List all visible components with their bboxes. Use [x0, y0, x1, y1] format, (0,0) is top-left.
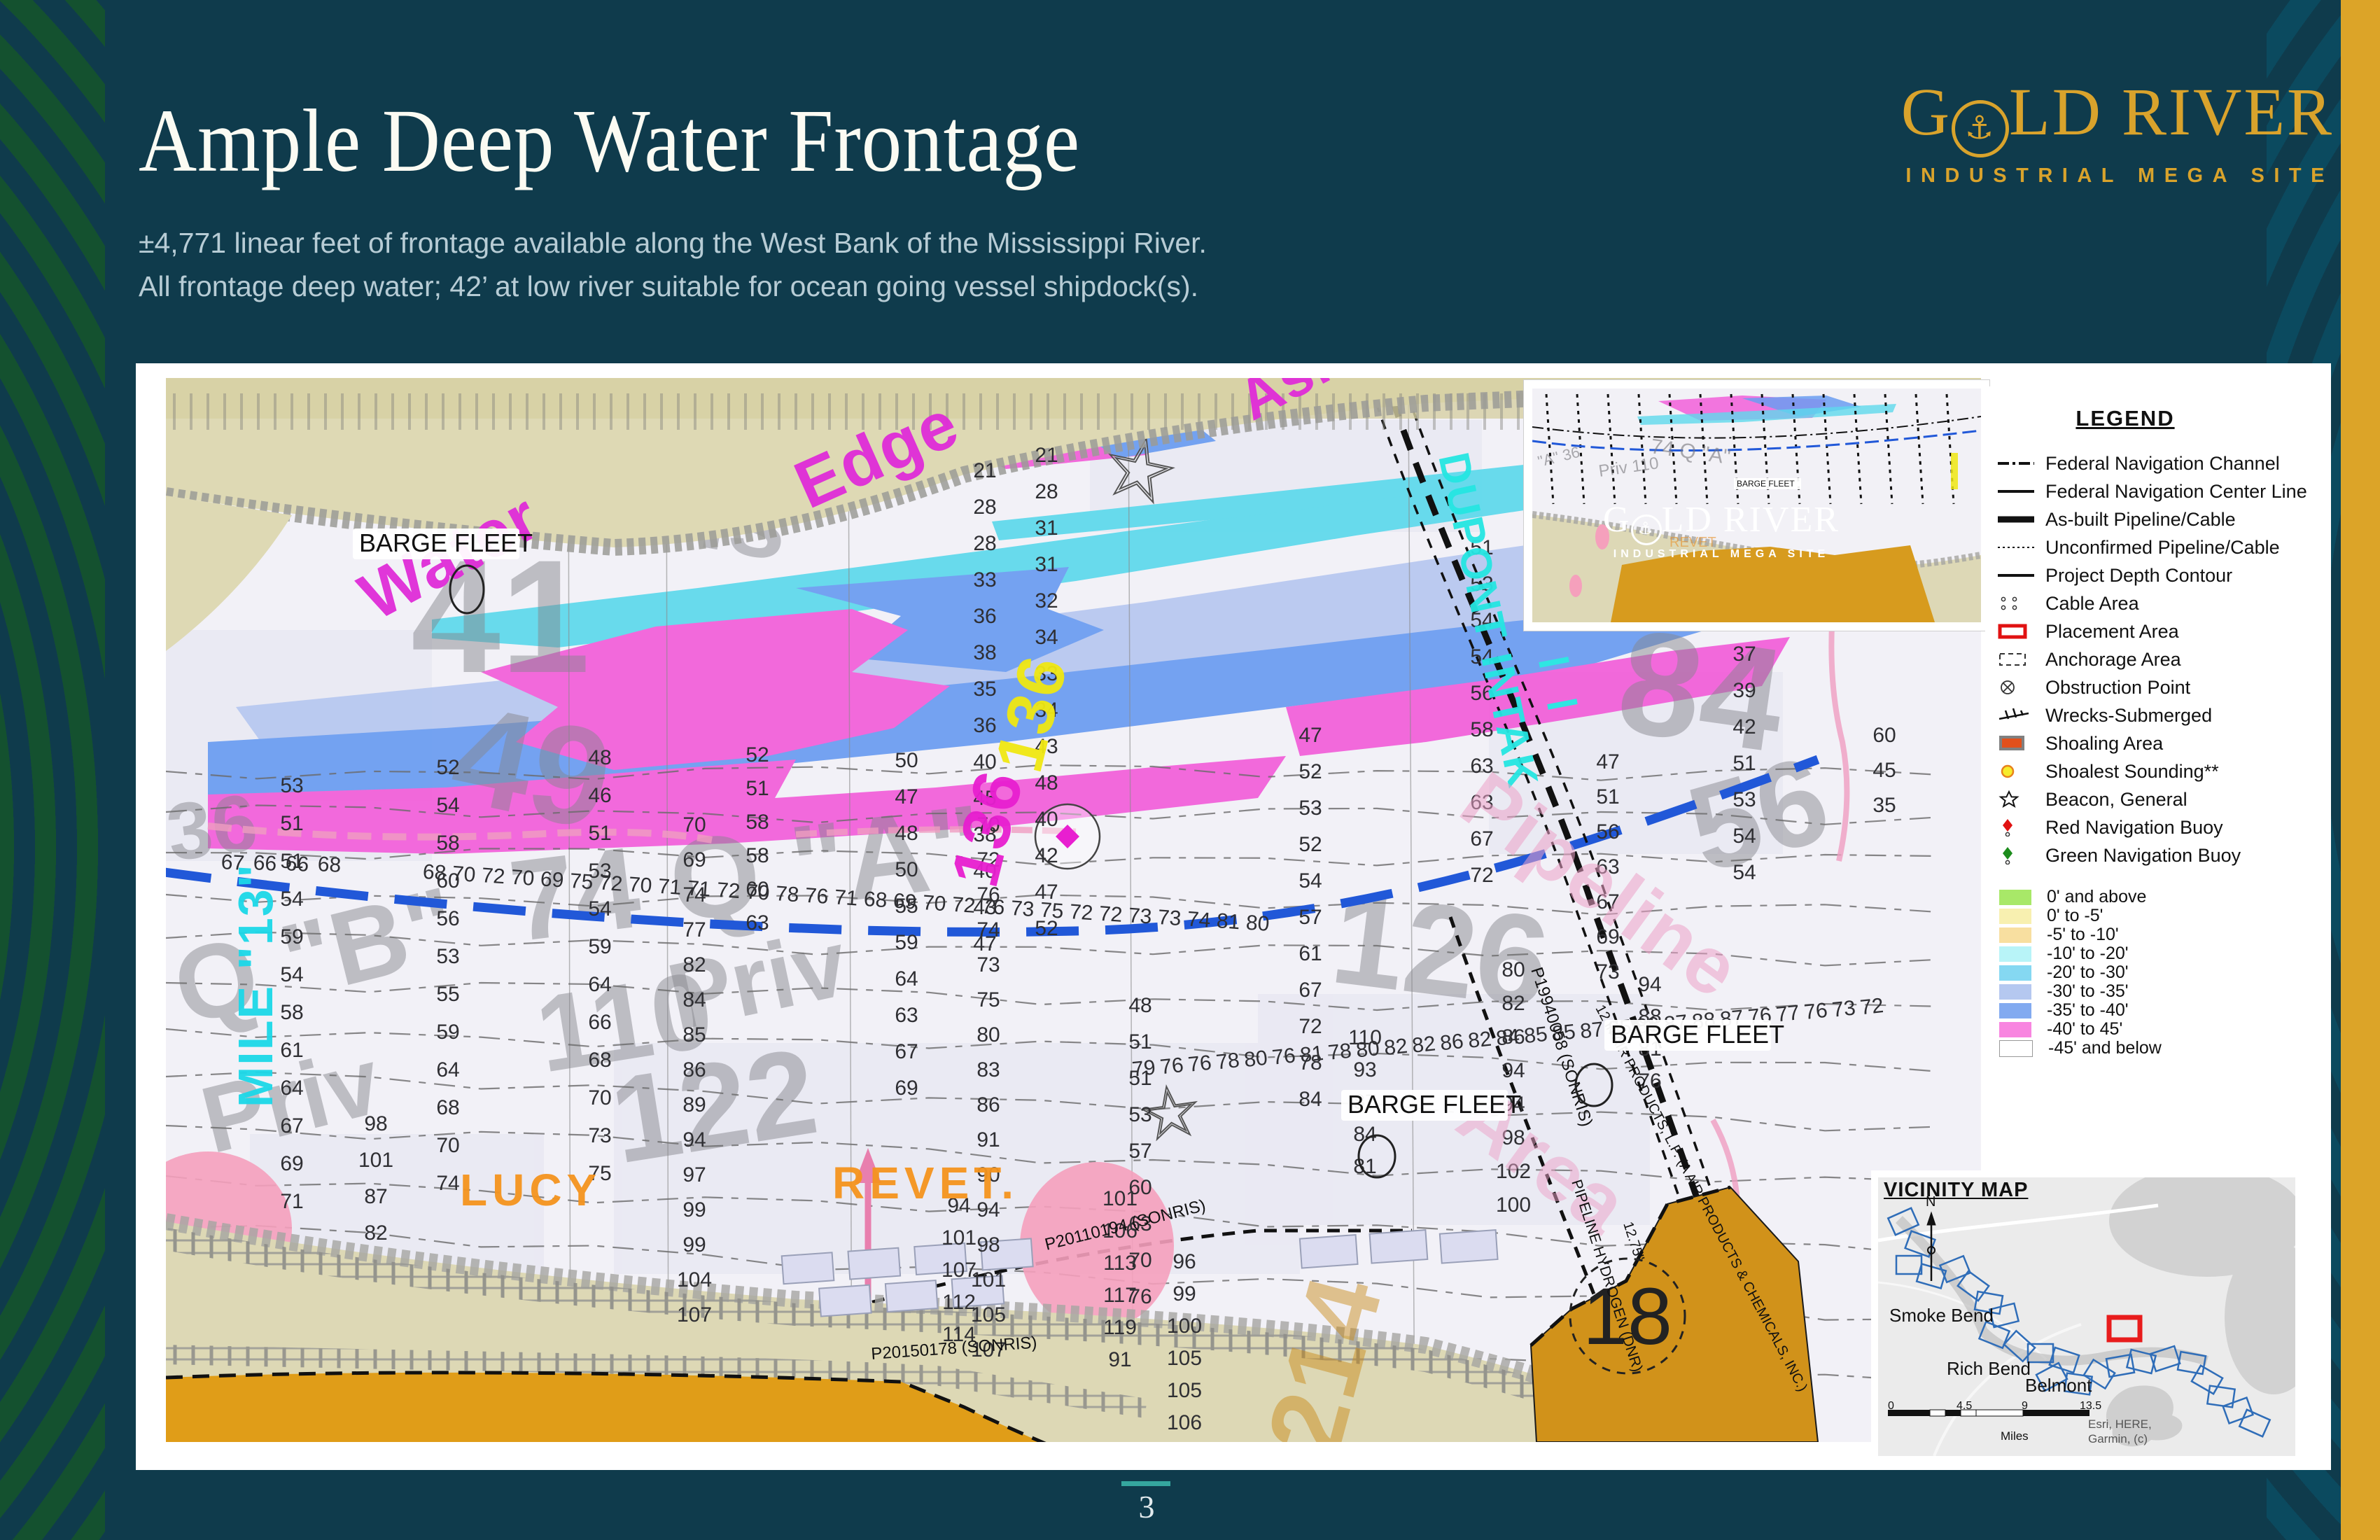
sounding: 54 [1298, 869, 1322, 892]
sounding: 52 [1298, 833, 1322, 856]
sounding: 71 [280, 1190, 303, 1213]
gold-river-logo: G⚓LD RIVER INDUSTRIAL MEGA SITE [1890, 78, 2334, 188]
sounding: 105 [971, 1303, 1006, 1326]
pipeline-sounding: 76 [1159, 1053, 1185, 1079]
sounding: 80 [1501, 958, 1525, 981]
sounding: 47 [1298, 724, 1322, 747]
logo-g: G [1901, 74, 1952, 149]
legend-item-label: Obstruction Point [2045, 677, 2190, 699]
legend-item: Shoaling Area [1985, 729, 2331, 757]
legend-item-label: Project Depth Contour [2045, 565, 2232, 587]
sounding: 48 [895, 822, 918, 845]
sounding: 57 [1128, 1140, 1151, 1163]
sounding: 51 [1596, 785, 1619, 808]
sounding: 77 [682, 918, 706, 941]
legend-item-label: Federal Navigation Center Line [2045, 481, 2307, 503]
sounding: 35 [1872, 794, 1896, 817]
depth-swatch [1999, 927, 2031, 943]
sounding: 70 [588, 1086, 611, 1109]
map-label: MILE "13" [228, 863, 283, 1107]
contour-line-icon [1996, 566, 2036, 584]
sounding: 101 [941, 1226, 976, 1249]
pipeline-sounding: 72 [1859, 994, 1885, 1019]
sounding: 104 [677, 1268, 712, 1291]
map-label: REVET. [832, 1158, 1018, 1208]
sounding: 63 [745, 911, 769, 934]
pipeline-sounding: 72 [716, 878, 741, 903]
pipeline-sounding: 81 [1299, 1042, 1325, 1067]
sounding: 36 [973, 605, 996, 628]
sounding: 54 [1732, 825, 1756, 848]
legend-item-label: As-built Pipeline/Cable [2045, 509, 2236, 531]
sounding: 91 [1108, 1348, 1131, 1371]
sounding: 73 [976, 953, 1000, 976]
pipeline-sounding: 70 [745, 880, 771, 904]
sounding: 70 [436, 1134, 459, 1157]
sounding: 69 [682, 848, 706, 871]
sounding: 34 [1035, 626, 1058, 649]
vicinity-scale-tick: 4.5 [1956, 1400, 1972, 1413]
pipeline-sounding: 68 [422, 860, 447, 885]
pipeline-sounding: 66 [285, 852, 309, 876]
legend-item-label: Beacon, General [2045, 789, 2187, 811]
sounding: 58 [280, 1001, 303, 1024]
sounding: 59 [436, 1021, 459, 1044]
shoaling-area-icon [1996, 734, 2036, 752]
sounding: 67 [1298, 979, 1322, 1002]
pipeline-sounding: 76 [981, 895, 1006, 919]
depth-swatch-label: -10' to -20' [2047, 944, 2129, 964]
pipeline-sounding: 79 [1131, 1056, 1157, 1081]
sounding: 52 [436, 756, 459, 779]
sounding: 53 [280, 774, 303, 797]
sounding: 86 [682, 1058, 706, 1081]
footer-divider [1121, 1481, 1170, 1486]
legend-item: Project Depth Contour [1985, 561, 2331, 589]
pipeline-sounding: 74 [1186, 907, 1212, 932]
depth-scale-row: -10' to -20' [1985, 944, 2331, 963]
pipeline-sounding: 72 [598, 871, 624, 895]
sounding: 89 [682, 1093, 706, 1116]
vicinity-title: VICINITY MAP [1884, 1179, 2028, 1202]
sounding: 59 [895, 931, 918, 954]
pipeline-sounding: 78 [775, 882, 800, 906]
barge-fleet-label: BARGE FLEET [1347, 1090, 1521, 1119]
logo-wordmark: G⚓LD RIVER [1890, 78, 2334, 157]
pipeline-sounding: 80 [1355, 1037, 1381, 1062]
sounding: 119 [1103, 1316, 1137, 1339]
legend-items: Federal Navigation ChannelFederal Naviga… [1985, 449, 2331, 869]
sounding: 75 [976, 988, 1000, 1011]
pipeline-sounding: 82 [1411, 1032, 1437, 1057]
pipeline-sounding: 71 [657, 875, 682, 899]
sounding: 59 [588, 935, 611, 958]
legend-item-label: Green Navigation Buoy [2045, 845, 2241, 867]
pipeline-sounding: 73 [1157, 906, 1182, 930]
vicinity-place-label: Smoke Bend [1889, 1305, 1994, 1326]
pipeline-sounding: 71 [834, 885, 859, 910]
vicinity-north-label: N [1926, 1194, 1935, 1210]
sounding: 74 [436, 1172, 459, 1195]
sounding: 67 [895, 1040, 918, 1063]
sounding: 52 [745, 743, 769, 766]
pipeline-sounding: 69 [540, 867, 565, 892]
pipeline-sounding: 80 [1245, 911, 1270, 936]
pipeline-sounding: 76 [1187, 1051, 1213, 1077]
depth-swatch [1999, 1022, 2031, 1037]
sounding: 84 [1353, 1123, 1376, 1146]
page-subtitle: ±4,771 linear feet of frontage available… [139, 221, 1539, 308]
sounding: 54 [1732, 861, 1756, 884]
depth-swatch [1999, 890, 2031, 905]
depth-scale-row: 0' and above [1985, 888, 2331, 906]
pipeline-sounding: 73 [1831, 996, 1857, 1021]
sounding: 61 [1298, 942, 1322, 965]
sounding: 53 [1128, 1103, 1151, 1126]
page-number: 3 [1092, 1488, 1201, 1525]
depth-swatch [1999, 1003, 2031, 1018]
legend-item-label: Wrecks-Submerged [2045, 705, 2212, 727]
pipeline-sounding: 70 [510, 866, 535, 890]
pipeline-sounding: 72 [1098, 902, 1123, 927]
pipeline-sounding: 76 [804, 884, 829, 909]
depth-swatch [1999, 1040, 2033, 1057]
pipeline-sounding: 70 [451, 862, 477, 886]
sounding: 99 [682, 1198, 706, 1221]
depth-color-scale: 0' and above0' to -5'-5' to -10'-10' to … [1985, 888, 2331, 1058]
vicinity-scale-bar [1888, 1410, 2089, 1416]
depth-swatch [1999, 909, 2031, 924]
sounding: 58 [436, 832, 459, 855]
legend-item: Wrecks-Submerged [1985, 701, 2331, 729]
barge-fleet-label: BARGE FLEET [1611, 1020, 1784, 1049]
sounding: 51 [280, 812, 303, 835]
sounding: 105 [1167, 1379, 1202, 1402]
sounding: 72 [1470, 864, 1493, 887]
subtitle-line-2: All frontage deep water; 42’ at low rive… [139, 265, 1539, 308]
legend-title: LEGEND [2013, 406, 2237, 431]
sounding: 106 [1167, 1411, 1202, 1434]
sounding: 50 [895, 858, 918, 881]
pipeline-sounding: 82 [1467, 1028, 1493, 1053]
sounding: 86 [976, 1093, 1000, 1116]
inset-logo-tagline: INDUSTRIAL MEGA SITE [1574, 548, 1868, 561]
overview-inset-map: 74 Q "A"Priv 110"A" 36REVET BARGE FLEET … [1524, 380, 1989, 631]
sounding: 40 [1035, 808, 1058, 831]
sounding: 31 [1035, 553, 1058, 576]
depth-scale-row: -20' to -30' [1985, 963, 2331, 982]
sounding: 85 [682, 1023, 706, 1046]
legend-item: Shoalest Sounding** [1985, 757, 2331, 785]
placement-area-icon [1996, 622, 2036, 640]
green-buoy-icon [1996, 846, 2036, 864]
inset-barge-label: BARGE FLEET [1737, 479, 1795, 489]
vicinity-map: VICINITY MAP N Smoke BendRich BendBelmon… [1878, 1177, 2295, 1456]
vicinity-scale-tick: 0 [1888, 1400, 1894, 1413]
sounding: 59 [280, 925, 303, 948]
depth-scale-row: 0' to -5' [1985, 906, 2331, 925]
depth-swatch-label: -20' to -30' [2047, 962, 2129, 983]
depth-scale-row: -30' to -35' [1985, 982, 2331, 1001]
sounding: 99 [682, 1233, 706, 1256]
sounding: 52 [1298, 760, 1322, 783]
depth-swatch-label: 0' to -5' [2047, 906, 2103, 926]
sounding: 45 [1872, 759, 1896, 782]
sounding: 82 [364, 1221, 387, 1245]
inset-anchor-icon: ⚓ [1631, 514, 1662, 545]
sounding: 81 [1353, 1155, 1376, 1178]
pipeline-sounding: 72 [1069, 900, 1094, 925]
pipeline-sounding: 72 [481, 864, 506, 888]
legend-item: Federal Navigation Center Line [1985, 477, 2331, 505]
pipeline-sounding: 82 [1383, 1035, 1409, 1060]
shoalest-sounding-icon [1996, 762, 2036, 780]
sounding: 64 [588, 973, 611, 996]
pipeline-sounding: 80 [1243, 1046, 1269, 1072]
vicinity-map-panel: VICINITY MAP N Smoke BendRich BendBelmon… [1871, 1170, 2302, 1463]
sounding: 42 [1035, 844, 1058, 867]
legend-item-label: Shoalest Sounding** [2045, 761, 2219, 783]
pipeline-sounding: 73 [1128, 904, 1153, 928]
pipeline-sounding: 70 [922, 891, 947, 916]
sounding: 51 [1128, 1030, 1151, 1053]
legend-item-label: Placement Area [2045, 621, 2179, 643]
sounding: 73 [1596, 960, 1619, 983]
inset-logo-wordmark: G⚓LD RIVER [1574, 499, 1868, 545]
sounding: 57 [1298, 906, 1322, 929]
sounding: 28 [973, 496, 996, 519]
legend-item-label: Anchorage Area [2045, 649, 2181, 671]
sounding: 53 [1298, 797, 1322, 820]
logo-tagline: INDUSTRIAL MEGA SITE [1890, 164, 2334, 188]
pipeline-sounding: 68 [863, 888, 888, 912]
sounding: 84 [1298, 1088, 1322, 1111]
sounding: 50 [895, 749, 918, 772]
sounding: 64 [280, 1077, 303, 1100]
legend-item: Red Navigation Buoy [1985, 813, 2331, 841]
sounding: 28 [1035, 480, 1058, 503]
depth-swatch [1999, 965, 2031, 981]
thick-line-icon [1996, 510, 2036, 528]
legend-item: Placement Area [1985, 617, 2331, 645]
sounding: 51 [1732, 752, 1756, 775]
depth-swatch-label: -45' and below [2048, 1038, 2162, 1058]
wreck-icon [1996, 706, 2036, 724]
vicinity-scale-tick: 13.5 [2080, 1400, 2101, 1413]
sounding: 105 [1167, 1347, 1202, 1370]
pipeline-sounding: 78 [1327, 1039, 1353, 1065]
sounding: 47 [1596, 750, 1619, 773]
sounding: 72 [1298, 1015, 1322, 1038]
depth-scale-row: -5' to -10' [1985, 925, 2331, 944]
sounding: 60 [1872, 724, 1896, 747]
sounding: 35 [973, 678, 996, 701]
pipeline-label: 12.75" [1620, 1220, 1647, 1263]
pipeline-sounding: 71 [687, 876, 712, 901]
inset-logo: G⚓LD RIVER INDUSTRIAL MEGA SITE [1574, 499, 1868, 561]
dashdot-line-icon [1996, 454, 2036, 472]
gold-accent-bar [2341, 0, 2380, 1540]
cable-area-icon [1996, 594, 2036, 612]
sounding: 112 [942, 1291, 976, 1314]
pipeline-sounding: 86 [1439, 1030, 1465, 1055]
pipeline-sounding: 73 [1010, 897, 1035, 921]
sounding: 48 [1128, 994, 1151, 1017]
dotted-line-icon [1996, 538, 2036, 556]
sounding: 113 [1103, 1252, 1137, 1275]
sounding: 32 [1035, 589, 1058, 612]
sounding: 51 [745, 777, 769, 800]
sounding: 73 [588, 1124, 611, 1147]
sounding: 63 [895, 1004, 918, 1027]
sounding: 91 [976, 1128, 1000, 1151]
sounding: 100 [1167, 1315, 1202, 1338]
sounding: 67 [280, 1114, 303, 1137]
sounding: 55 [436, 983, 459, 1006]
legend-item: Federal Navigation Channel [1985, 449, 2331, 477]
sounding: 21 [973, 459, 996, 482]
pipeline-sounding: 75 [569, 869, 594, 894]
sounding: 47 [973, 932, 996, 955]
page-title: Ample Deep Water Frontage [139, 90, 1273, 192]
sounding: 42 [1732, 715, 1756, 738]
legend-item: Green Navigation Buoy [1985, 841, 2331, 869]
sounding: 84 [682, 988, 706, 1011]
pipeline-sounding: 70 [628, 873, 653, 897]
sounding: 107 [941, 1259, 976, 1282]
sounding: 69 [280, 1152, 303, 1175]
sounding: 56 [436, 907, 459, 930]
depth-swatch [1999, 984, 2031, 1000]
pipeline-sounding: 76 [1271, 1044, 1297, 1069]
legend-item: Cable Area [1985, 589, 2331, 617]
sounding: 33 [973, 568, 996, 591]
pipeline-sounding: 75 [1039, 898, 1065, 923]
sounding: 82 [682, 953, 706, 976]
sounding: 117 [1103, 1284, 1137, 1307]
sounding: 21 [1035, 444, 1058, 467]
vicinity-attribution: Esri, HERE, Garmin, (c) [2088, 1417, 2152, 1446]
depth-scale-row: -40' to 45' [1985, 1020, 2331, 1039]
vicinity-scale-tick: 9 [2022, 1400, 2028, 1413]
anchorage-area-icon [1996, 650, 2036, 668]
sounding: 38 [973, 641, 996, 664]
legend-item-label: Unconfirmed Pipeline/Cable [2045, 537, 2280, 559]
sounding: 94 [682, 1128, 706, 1151]
wave-pattern-left [0, 0, 105, 1540]
sounding: 31 [1035, 517, 1058, 540]
sounding: 46 [588, 784, 611, 807]
beacon-icon [1996, 790, 2036, 808]
pipeline-sounding: 84 [1495, 1025, 1521, 1050]
sounding: 101 [358, 1149, 393, 1172]
map-label: LUCY [460, 1165, 601, 1215]
sounding: 48 [588, 746, 611, 769]
sounding: 51 [588, 822, 611, 845]
pipeline-sounding: 72 [951, 893, 976, 918]
sounding: 69 [895, 1077, 918, 1100]
sounding: 58 [745, 811, 769, 834]
pipeline-sounding: 68 [317, 853, 342, 877]
subtitle-line-1: ±4,771 linear feet of frontage available… [139, 221, 1539, 265]
solid-line-icon [1996, 482, 2036, 500]
sounding: 68 [436, 1096, 459, 1119]
legend-item-label: Red Navigation Buoy [2045, 817, 2223, 839]
sounding: 53 [1732, 788, 1756, 811]
legend-item: As-built Pipeline/Cable [1985, 505, 2331, 533]
pipeline-sounding: 81 [1216, 909, 1241, 934]
depth-swatch-label: -40' to 45' [2047, 1019, 2122, 1039]
anchor-icon: ⚓ [1952, 100, 2009, 157]
red-buoy-icon [1996, 818, 2036, 836]
sounding: 87 [364, 1185, 387, 1208]
sounding: 80 [976, 1023, 1000, 1046]
sounding: 66 [588, 1011, 611, 1034]
depth-scale-row: -45' and below [1985, 1039, 2331, 1058]
vicinity-scale-unit: Miles [2001, 1429, 2029, 1443]
sounding: 54 [280, 888, 303, 911]
legend-item-label: Cable Area [2045, 593, 2139, 615]
sounding: 96 [1172, 1250, 1196, 1273]
legend-item: Anchorage Area [1985, 645, 2331, 673]
sounding: 98 [364, 1112, 387, 1135]
pipeline-sounding: 76 [1803, 999, 1829, 1024]
sounding: 70 [682, 813, 706, 836]
legend-item-label: Federal Navigation Channel [2045, 453, 2280, 475]
sounding: 98 [976, 1233, 1000, 1256]
sounding: 54 [588, 897, 611, 920]
legend-item: Unconfirmed Pipeline/Cable [1985, 533, 2331, 561]
logo-rest: LD RIVER [2009, 74, 2334, 149]
sounding: 101 [1102, 1187, 1137, 1210]
legend-item: Obstruction Point [1985, 673, 2331, 701]
sounding: 68 [588, 1049, 611, 1072]
barge-fleet-label: BARGE FLEET [359, 528, 533, 557]
legend-item: Beacon, General [1985, 785, 2331, 813]
sounding: 37 [1732, 643, 1756, 666]
depth-swatch [1999, 946, 2031, 962]
depth-swatch-label: -30' to -35' [2047, 981, 2129, 1002]
depth-swatch-label: -35' to -40' [2047, 1000, 2129, 1021]
sounding: 54 [436, 794, 459, 817]
obstruction-point-icon [1996, 678, 2036, 696]
sounding: 107 [677, 1303, 712, 1326]
depth-scale-row: -35' to -40' [1985, 1001, 2331, 1020]
sounding: 83 [976, 1058, 1000, 1081]
pipeline-sounding: 69 [892, 889, 918, 913]
sounding: 99 [1172, 1282, 1196, 1305]
vicinity-place-label: Belmont [2025, 1375, 2092, 1396]
vicinity-place-label: Rich Bend [1947, 1358, 2031, 1380]
depth-swatch-label: -5' to -10' [2047, 925, 2119, 945]
pipeline-sounding: 78 [1215, 1049, 1241, 1074]
sounding: 97 [682, 1163, 706, 1186]
sounding: 61 [280, 1039, 303, 1062]
sounding: 58 [745, 844, 769, 867]
sounding: 64 [436, 1058, 459, 1081]
sounding: 64 [895, 967, 918, 990]
depth-swatch-label: 0' and above [2047, 887, 2146, 907]
sounding: 53 [436, 945, 459, 968]
pipeline-sounding: 85 [1523, 1023, 1549, 1048]
sounding: 28 [973, 532, 996, 555]
sounding: 82 [1501, 992, 1525, 1015]
legend-item-label: Shoaling Area [2045, 733, 2163, 755]
sounding: 54 [280, 963, 303, 986]
sounding: 39 [1732, 679, 1756, 702]
sounding: 47 [895, 785, 918, 808]
